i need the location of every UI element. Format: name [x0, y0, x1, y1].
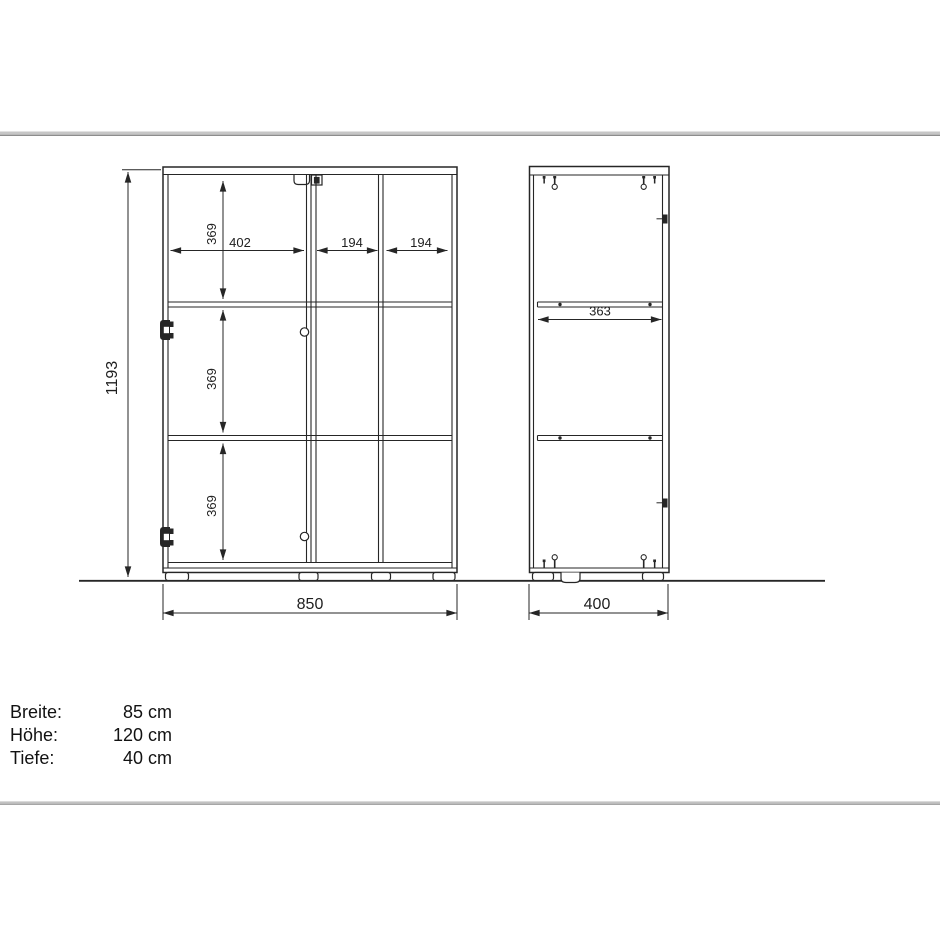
divider-rule-bottom	[0, 801, 940, 804]
spec-row-hoehe: Höhe: 120 cm	[10, 724, 200, 747]
side-view	[530, 167, 670, 583]
bottom-fitting-bolts	[543, 560, 656, 569]
side-hinge-bottom	[657, 499, 668, 508]
front-view-dimensions	[122, 170, 457, 620]
front-row1-label: 369	[204, 223, 219, 245]
front-height-label: 1193	[104, 361, 121, 396]
spec-label: Höhe:	[10, 724, 88, 747]
door-hinge-top	[160, 320, 174, 340]
side-outer-body	[530, 167, 670, 573]
door-handle-hole-bottom	[300, 532, 308, 540]
top-fitting-bolts	[543, 176, 656, 185]
spec-label: Breite:	[10, 701, 88, 724]
spec-row-tiefe: Tiefe: 40 cm	[10, 747, 200, 770]
front-row2-label: 369	[204, 368, 219, 390]
front-col3-label: 194	[410, 235, 432, 250]
side-depth-label: 400	[584, 596, 611, 613]
spec-value: 40 cm	[88, 747, 172, 770]
door-handle-hole-top	[300, 328, 308, 336]
shelf-pins	[558, 303, 651, 440]
front-row3-label: 369	[204, 495, 219, 517]
cabinet-dimension-drawing: 1193 369 369 369 402 194 194 850	[0, 0, 940, 940]
spec-label: Tiefe:	[10, 747, 88, 770]
side-shelf-depth-label: 363	[589, 304, 611, 319]
side-view-dimension-labels: 363 400	[584, 304, 611, 614]
side-hinge-top	[657, 215, 668, 224]
spec-value: 120 cm	[88, 724, 172, 747]
dimensions-summary: Breite: 85 cm Höhe: 120 cm Tiefe: 40 cm	[10, 701, 200, 770]
spec-row-breite: Breite: 85 cm	[10, 701, 200, 724]
front-col2-label: 194	[341, 235, 363, 250]
divider-rule-top	[0, 132, 940, 136]
front-feet	[166, 573, 456, 581]
technical-drawing-page: 1193 369 369 369 402 194 194 850	[0, 0, 940, 940]
spec-value: 85 cm	[88, 701, 172, 724]
door-top-bracket	[294, 175, 322, 185]
front-col1-label: 402	[229, 235, 251, 250]
front-width-label: 850	[297, 596, 324, 613]
front-height-dimension	[122, 170, 161, 577]
door-hinge-bottom	[160, 527, 174, 547]
